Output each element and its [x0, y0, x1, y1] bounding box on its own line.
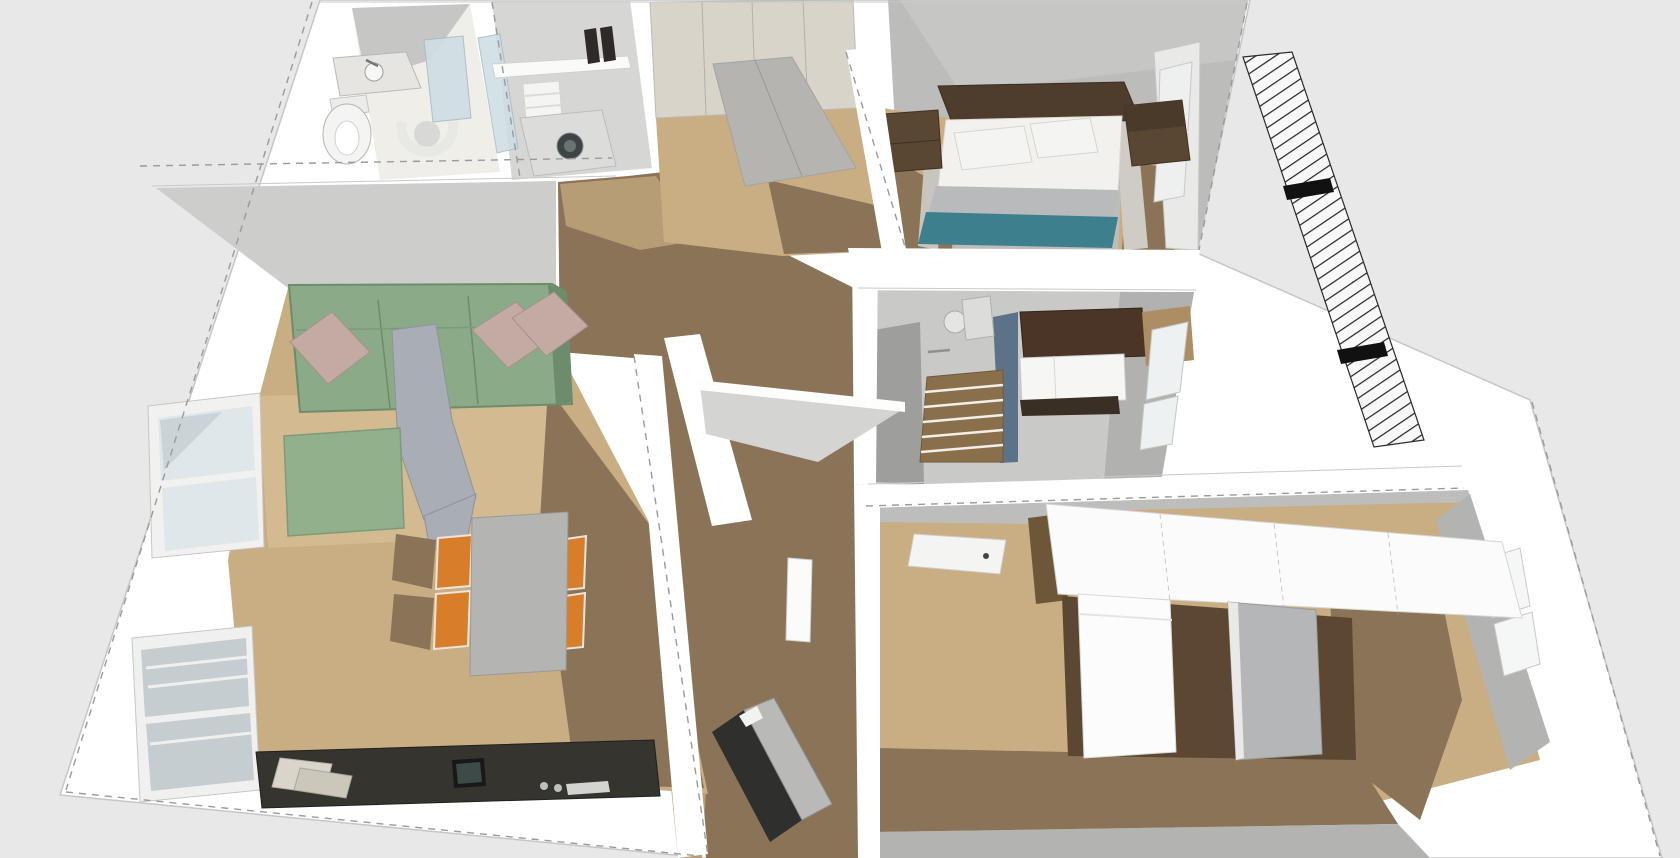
wall-hall-kitchen: [854, 484, 880, 858]
washing-machine-drum-inner: [564, 140, 576, 152]
dining-chair: [436, 535, 472, 589]
sink-tap: [983, 553, 989, 559]
wall-hall-bathroom: [852, 248, 878, 486]
decor-knob: [554, 784, 562, 792]
shower-column: [962, 296, 994, 340]
bed-pillow: [954, 126, 1032, 170]
wall-bedroom-bathroom: [848, 248, 1200, 292]
decor-knob: [540, 782, 548, 790]
door-leaf: [786, 558, 812, 642]
chair-shadow: [390, 594, 434, 650]
window-pane: [146, 713, 254, 791]
bedroom: [868, 0, 1248, 250]
toilet-bowl: [335, 121, 359, 155]
picture-frame-image: [456, 762, 482, 784]
vanity-countertop: [1020, 308, 1146, 360]
ottoman: [284, 428, 404, 536]
dining-chair: [434, 591, 470, 649]
chair-shadow: [392, 534, 436, 589]
dining-table: [470, 512, 568, 676]
floorplan-stage: [0, 0, 1680, 858]
shower-head: [944, 311, 966, 333]
bidet-bowl: [414, 121, 440, 147]
floorplan-3d-render: [0, 0, 1680, 858]
bathroom-window: [1140, 396, 1178, 450]
window-pane: [162, 477, 259, 551]
washbasin: [365, 63, 383, 81]
kitchen-floor-shadow-bottom: [876, 748, 1398, 832]
bed-pillow: [1030, 118, 1098, 158]
bed-runner-teal: [918, 212, 1118, 248]
bathroom: [858, 290, 1194, 488]
